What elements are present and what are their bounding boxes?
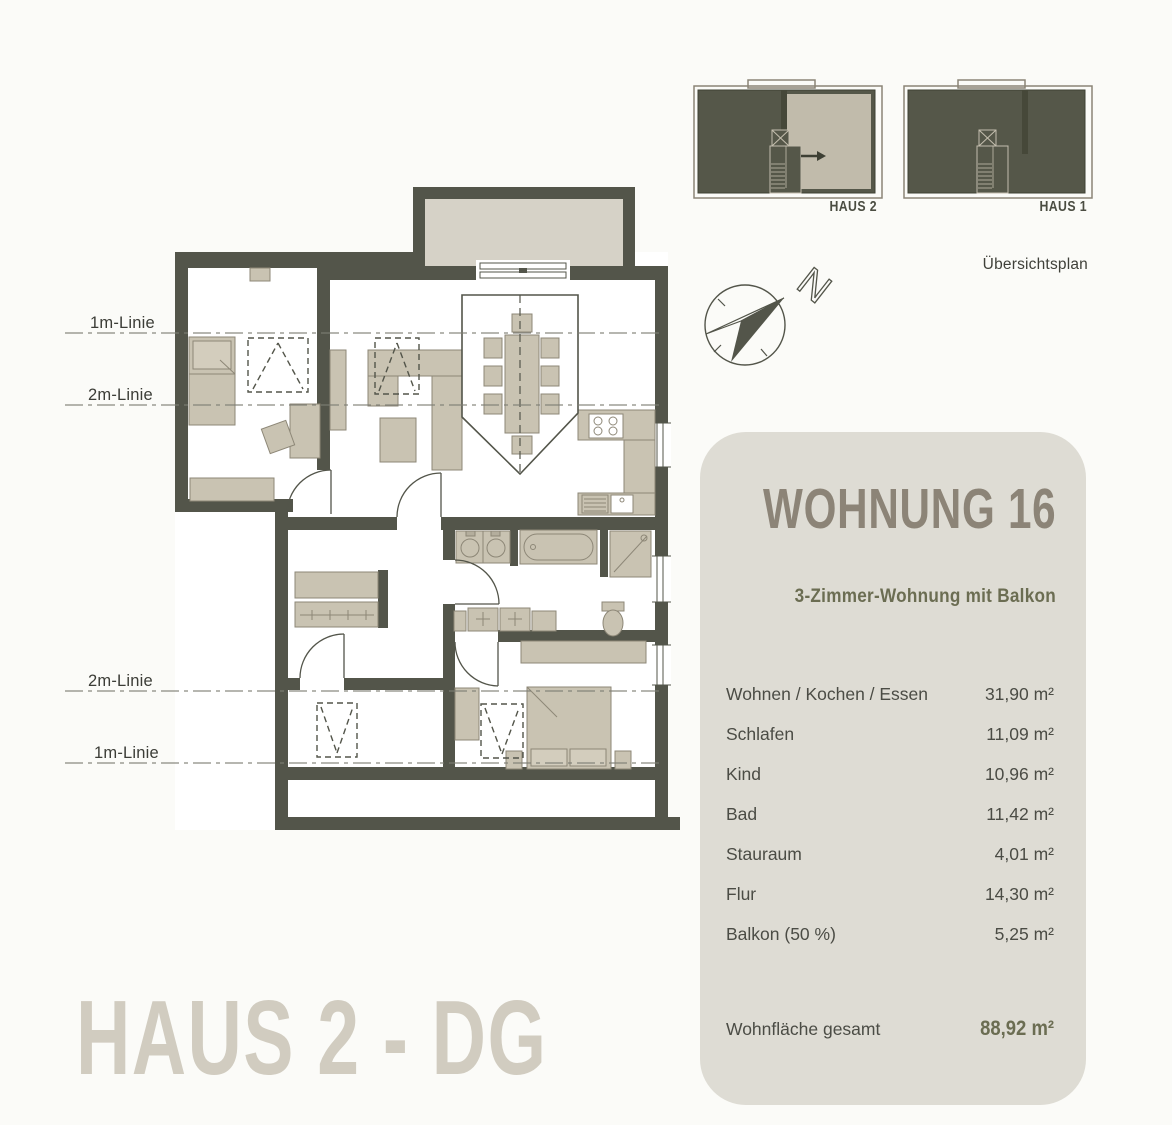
total-row: Wohnfläche gesamt 88,92 m²	[726, 1017, 1054, 1041]
tv-board	[330, 350, 346, 430]
dresser	[455, 688, 479, 740]
room-area: 5,25 m²	[995, 924, 1054, 945]
room-name: Flur	[726, 884, 756, 905]
desk	[290, 404, 320, 458]
haus2-label: HAUS 2	[829, 198, 877, 215]
balcony-wall-top	[413, 187, 635, 199]
apartment-info-panel: WOHNUNG 16 3-Zimmer-Wohnung mit Balkon W…	[700, 432, 1086, 1105]
room-row: Stauraum 4,01 m²	[726, 844, 1054, 866]
balcony-floor	[425, 199, 623, 266]
overview-caption: Übersichtsplan	[983, 256, 1088, 274]
room-area: 10,96 m²	[985, 764, 1054, 785]
compass-rose: N	[705, 260, 839, 365]
height-line-label-2m-bottom: 2m-Linie	[88, 672, 153, 691]
room-row: Bad 11,42 m²	[726, 804, 1054, 826]
outer-wall-left	[275, 499, 288, 830]
outer-wall-bottom	[275, 817, 680, 830]
room-row: Kind 10,96 m²	[726, 764, 1054, 786]
haus1-label: HAUS 1	[1039, 198, 1087, 215]
mini-plan-haus1	[904, 80, 1092, 198]
wardrobe-bedroom	[521, 641, 646, 663]
room-row: Flur 14,30 m²	[726, 884, 1054, 906]
stove	[589, 414, 623, 438]
needle-dark	[731, 298, 784, 362]
sofa	[368, 350, 462, 376]
mini-plan-haus2	[694, 80, 882, 198]
room-area: 14,30 m²	[985, 884, 1054, 905]
room-name: Stauraum	[726, 844, 802, 865]
height-line-label-2m-top: 2m-Linie	[88, 386, 153, 405]
bedroom-window	[652, 645, 671, 685]
room-area: 11,09 m²	[986, 724, 1054, 745]
compass-north-label: N	[789, 260, 839, 312]
room-row: Balkon (50 %) 5,25 m²	[726, 924, 1054, 946]
room-area: 4,01 m²	[995, 844, 1054, 865]
room-name: Schlafen	[726, 724, 794, 745]
room-name: Kind	[726, 764, 761, 785]
total-label: Wohnfläche gesamt	[726, 1019, 880, 1040]
height-line-label-1m-bottom: 1m-Linie	[94, 744, 159, 763]
room-area: 11,42 m²	[986, 804, 1054, 825]
apartment-subtitle: 3-Zimmer-Wohnung mit Balkon	[795, 585, 1056, 608]
bath-window	[652, 556, 671, 602]
balcony-door	[476, 260, 570, 284]
wardrobe-kind	[190, 478, 274, 501]
room-name: Bad	[726, 804, 757, 825]
page-title: HAUS 2 - DG	[76, 985, 547, 1091]
dining-table	[505, 335, 539, 433]
outer-wall-right	[655, 266, 668, 830]
apartment-title: WOHNUNG 16	[763, 476, 1056, 542]
room-area: 31,90 m²	[985, 684, 1054, 705]
height-line-label-1m-top: 1m-Linie	[90, 314, 155, 333]
coffee-table	[380, 418, 416, 462]
room-name: Balkon (50 %)	[726, 924, 836, 945]
room-row: Wohnen / Kochen / Essen 31,90 m²	[726, 684, 1054, 706]
total-area: 88,92 m²	[980, 1017, 1054, 1041]
room-row: Schlafen 11,09 m²	[726, 724, 1054, 746]
floorplan-sheet: N HAUS 2 HAUS 1 Übersichtsplan 1m-Linie …	[0, 0, 1172, 1125]
room-name: Wohnen / Kochen / Essen	[726, 684, 928, 705]
